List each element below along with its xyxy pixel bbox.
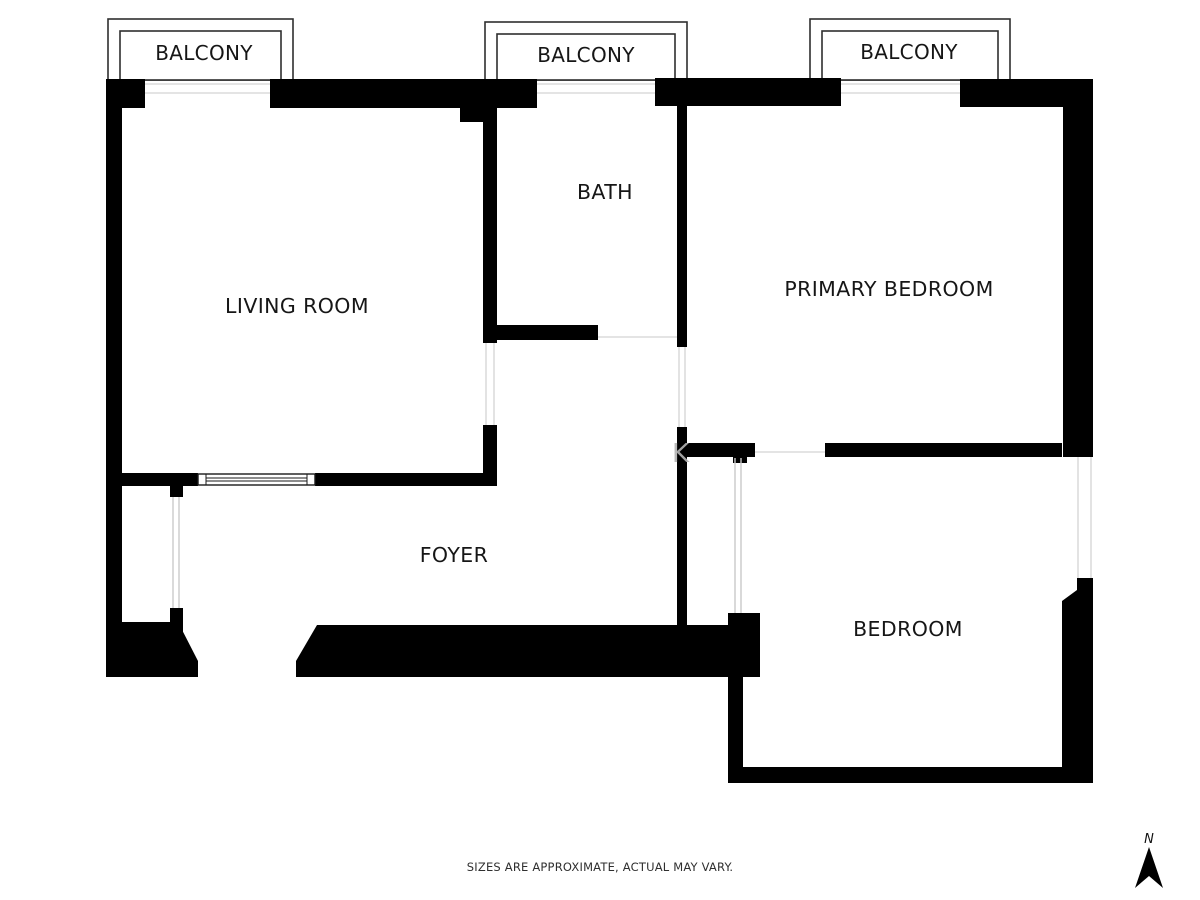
- room-label-bedroom: BEDROOM: [853, 617, 963, 641]
- room-label-bath: BATH: [577, 180, 633, 204]
- wall-segment: [122, 622, 183, 638]
- wall-segment: [655, 78, 841, 106]
- wall-segment: [122, 473, 198, 486]
- window-symbol: [198, 474, 315, 485]
- wall-segment: [296, 625, 728, 677]
- wall-segment: [315, 473, 497, 486]
- wall-segment: [483, 108, 497, 343]
- window-frame: [198, 474, 315, 485]
- labels: BALCONY BALCONY BALCONY LIVING ROOM BATH…: [155, 40, 993, 641]
- north-arrow-icon: N: [1135, 832, 1163, 888]
- wall-segment: [687, 443, 755, 457]
- watermark-letter: K: [672, 439, 690, 469]
- wall-segment: [1063, 79, 1093, 457]
- room-label-living-room: LIVING ROOM: [225, 294, 369, 318]
- north-arrow-pointer: [1135, 847, 1163, 888]
- balcony-label: BALCONY: [155, 41, 253, 65]
- wall-segment: [1062, 578, 1093, 783]
- wall-segment: [483, 325, 598, 340]
- room-label-foyer: FOYER: [420, 543, 489, 567]
- wall-segment: [677, 106, 687, 347]
- wall-segment: [728, 767, 1093, 783]
- north-label: N: [1144, 832, 1154, 847]
- room-label-primary-bedroom: PRIMARY BEDROOM: [784, 277, 993, 301]
- openings: [145, 84, 1091, 613]
- wall-segment: [170, 608, 183, 624]
- wall-segment: [460, 108, 487, 122]
- wall-segment: [170, 486, 183, 497]
- floorplan-page: BALCONY BALCONY BALCONY LIVING ROOM BATH…: [0, 0, 1200, 900]
- wall-segment: [728, 613, 760, 677]
- disclaimer-text: SIZES ARE APPROXIMATE, ACTUAL MAY VARY.: [467, 860, 733, 874]
- wall-segment: [825, 443, 1062, 457]
- balcony-label: BALCONY: [537, 43, 635, 67]
- floorplan-drawing: BALCONY BALCONY BALCONY LIVING ROOM BATH…: [0, 0, 1200, 900]
- balcony-label: BALCONY: [860, 40, 958, 64]
- wall-segment: [270, 79, 537, 108]
- wall-segment: [106, 93, 122, 625]
